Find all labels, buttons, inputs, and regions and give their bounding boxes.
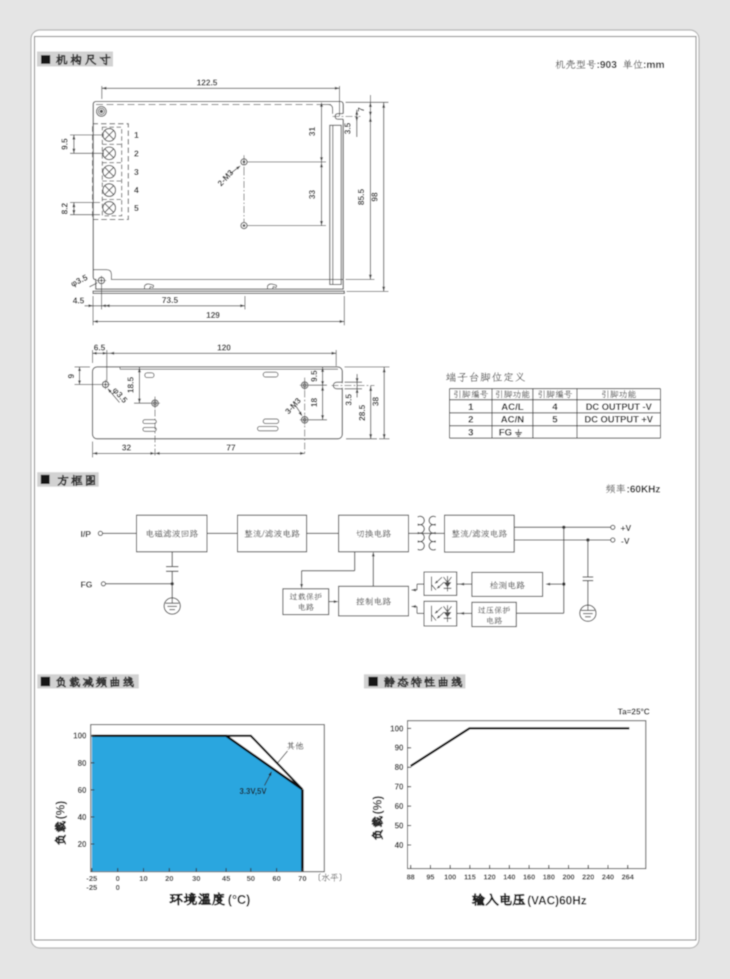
- svg-text:DC OUTPUT +V: DC OUTPUT +V: [585, 415, 654, 425]
- svg-text:18.5: 18.5: [125, 377, 135, 394]
- svg-text:60: 60: [395, 802, 404, 811]
- svg-text:115: 115: [464, 873, 476, 882]
- svg-text:50: 50: [395, 821, 404, 830]
- svg-text:45: 45: [222, 874, 231, 883]
- svg-text:0: 0: [116, 883, 120, 892]
- svg-text:3: 3: [468, 428, 473, 439]
- svg-text:5: 5: [134, 203, 139, 213]
- svg-text:100: 100: [73, 732, 87, 741]
- svg-text:180: 180: [543, 873, 555, 882]
- svg-text:18: 18: [309, 398, 319, 408]
- svg-text:40: 40: [78, 813, 87, 822]
- svg-text:120: 120: [484, 873, 496, 882]
- svg-text:I/P: I/P: [81, 529, 92, 539]
- svg-text:98: 98: [369, 192, 379, 202]
- svg-text:80: 80: [78, 759, 87, 768]
- svg-text:8.2: 8.2: [59, 202, 69, 214]
- svg-text:9: 9: [66, 374, 76, 379]
- svg-text:60: 60: [78, 786, 87, 795]
- svg-text:220: 220: [582, 873, 594, 882]
- svg-text:50: 50: [247, 874, 255, 883]
- svg-text:32: 32: [122, 442, 132, 452]
- svg-text:7: 7: [356, 107, 366, 112]
- svg-text:90: 90: [395, 744, 404, 753]
- svg-text:140: 140: [503, 873, 515, 882]
- svg-text:3: 3: [134, 167, 139, 177]
- svg-text:100: 100: [390, 724, 404, 733]
- svg-text:38: 38: [370, 397, 380, 407]
- svg-text:6.5: 6.5: [94, 343, 106, 353]
- svg-text:80: 80: [395, 763, 404, 772]
- svg-text:-25: -25: [86, 883, 98, 892]
- svg-text:2: 2: [134, 148, 139, 158]
- svg-text:70: 70: [298, 874, 306, 883]
- svg-text:5: 5: [552, 415, 558, 426]
- svg-text:3.5: 3.5: [343, 394, 353, 406]
- svg-text:DC OUTPUT -V: DC OUTPUT -V: [586, 402, 653, 412]
- svg-text:AC/L: AC/L: [501, 402, 524, 413]
- svg-text:2: 2: [468, 415, 473, 426]
- svg-text:4: 4: [134, 185, 139, 195]
- svg-text:FG: FG: [81, 580, 93, 590]
- svg-text:33: 33: [307, 190, 317, 200]
- svg-text:200: 200: [562, 873, 574, 882]
- svg-text:77: 77: [226, 442, 236, 452]
- svg-text:30: 30: [192, 874, 200, 883]
- svg-text:31: 31: [307, 127, 317, 137]
- svg-text:1: 1: [468, 402, 474, 413]
- svg-text:160: 160: [523, 873, 535, 882]
- svg-text:(%): (%): [54, 801, 68, 820]
- svg-text:Ta=25°C: Ta=25°C: [618, 707, 650, 716]
- svg-text:+V: +V: [621, 523, 632, 533]
- svg-text:-V: -V: [621, 536, 630, 546]
- svg-text:122.5: 122.5: [197, 77, 218, 87]
- svg-text:129: 129: [206, 310, 220, 320]
- svg-text::mm: :mm: [643, 60, 665, 71]
- svg-text:10: 10: [139, 874, 147, 883]
- svg-text:240: 240: [602, 873, 614, 882]
- svg-text:(%): (%): [371, 796, 385, 815]
- svg-text::60KHz: :60KHz: [627, 484, 661, 495]
- svg-text:4: 4: [552, 402, 558, 413]
- svg-text:4.5: 4.5: [73, 295, 85, 305]
- svg-text:0: 0: [116, 874, 120, 883]
- svg-text:120: 120: [217, 343, 231, 353]
- svg-text:-25: -25: [86, 874, 98, 883]
- svg-text::903: :903: [597, 60, 618, 71]
- svg-text:3.3V,5V: 3.3V,5V: [240, 787, 268, 796]
- svg-text:95: 95: [426, 873, 434, 882]
- svg-text:(VAC)60Hz: (VAC)60Hz: [527, 893, 587, 907]
- svg-text:264: 264: [622, 873, 635, 882]
- svg-text:20: 20: [78, 840, 87, 849]
- svg-text:9.5: 9.5: [309, 370, 319, 382]
- svg-text:3.5: 3.5: [342, 122, 352, 134]
- svg-text:AC/N: AC/N: [501, 415, 525, 426]
- svg-text:85.5: 85.5: [356, 189, 366, 206]
- svg-text:88: 88: [407, 873, 415, 882]
- svg-text:60: 60: [272, 874, 280, 883]
- svg-text:1: 1: [134, 130, 139, 140]
- svg-text:70: 70: [395, 783, 404, 792]
- svg-text:100: 100: [444, 873, 456, 882]
- svg-text:20: 20: [165, 874, 173, 883]
- svg-text:FG: FG: [499, 428, 512, 439]
- svg-text:28.5: 28.5: [357, 404, 367, 421]
- svg-text:40: 40: [395, 841, 404, 850]
- svg-text:73.5: 73.5: [162, 295, 179, 305]
- svg-text:(°C): (°C): [228, 893, 251, 907]
- svg-text:9.5: 9.5: [59, 138, 69, 150]
